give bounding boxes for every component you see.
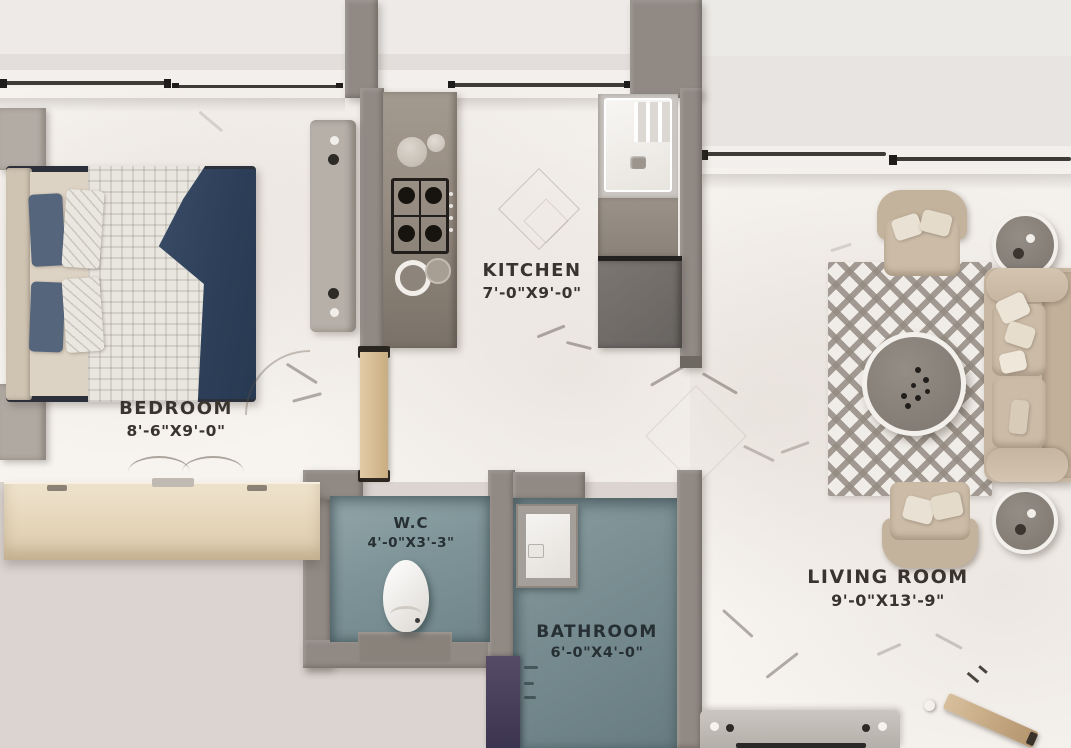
table-decor-dark (911, 383, 916, 388)
nightstand (0, 108, 46, 170)
room-dimensions: 4'-0"X3'-3" (367, 535, 454, 551)
wc-label: W.C 4'-0"X3'-3" (367, 514, 454, 551)
floor-plan: BEDROOM 8'-6"X9'-0" KITCHEN 7'-0"X9'-0" … (0, 0, 1071, 748)
wall-kitchen-right-top (630, 0, 702, 98)
toilet-flush-dot (415, 618, 420, 623)
wall-floor-shadow (0, 98, 345, 112)
console-knob-dark (862, 724, 870, 732)
counter-bowl (425, 258, 451, 284)
tv-console (700, 710, 900, 748)
wc-platform (358, 632, 452, 662)
bathroom-floor-mark (524, 682, 534, 685)
dresser-cabinet (310, 120, 356, 332)
table-decor-dark (925, 389, 930, 394)
cabinet-knob-light (330, 136, 339, 145)
cooking-pot (427, 134, 445, 152)
table-decor-light (1027, 509, 1036, 518)
toilet (383, 560, 429, 632)
table-decor-dark (901, 393, 907, 399)
refrigerator (598, 256, 682, 348)
console-knob-light (878, 722, 887, 731)
stove-knob (449, 228, 453, 232)
tv-screen (736, 743, 866, 748)
window-glass-line (893, 157, 1071, 161)
decor-wire (182, 456, 244, 488)
room-name: BEDROOM (119, 398, 233, 419)
table-decor-dark (1015, 524, 1026, 535)
wall-wc-bath-divider (488, 470, 515, 662)
kitchen-sink (598, 94, 678, 198)
armchair (877, 190, 967, 282)
cabinet-knob-dark (328, 154, 339, 165)
wardrobe-handle (247, 485, 267, 491)
table-decor-dark (905, 403, 911, 409)
table-decor-dark (923, 377, 929, 383)
room-dimensions: 9'-0"X13'-9" (807, 591, 968, 610)
sofa-armrest (986, 448, 1068, 482)
table-decor-light (1026, 234, 1035, 243)
decor-wire (128, 456, 190, 488)
cooking-pot (397, 137, 427, 167)
window-frame-cap (889, 155, 897, 165)
wall-bedroom-kitchen-top (345, 0, 378, 98)
wall-kitchen-living (680, 88, 702, 368)
exterior-wall-right-band (690, 0, 1071, 150)
living-room-label: LIVING ROOM 9'-0"X13'-9" (807, 566, 968, 610)
console-knob-light (710, 722, 719, 731)
round-side-table (992, 488, 1058, 554)
cabinet-knob-light (330, 308, 339, 317)
kitchen-counter-right (598, 198, 678, 256)
double-bed (6, 166, 256, 402)
wooden-door-bedroom (360, 352, 388, 478)
sofa-armrest (986, 268, 1068, 302)
bathroom-label: BATHROOM 6'-0"X4'-0" (536, 622, 658, 661)
wall-floor-shadow (702, 174, 1071, 190)
pillow-white (61, 189, 104, 269)
window-frame-cap (0, 79, 7, 88)
wardrobe (4, 482, 320, 560)
sofa (984, 268, 1071, 482)
wall-bathroom-top (513, 472, 585, 500)
room-name: W.C (367, 514, 454, 532)
table-decor-dark (1013, 248, 1024, 259)
kitchen-counter (383, 92, 457, 348)
bathroom-floor-mark (524, 696, 536, 699)
room-dimensions: 8'-6"X9'-0" (119, 422, 233, 440)
cabinet-knob-dark (328, 288, 339, 299)
window-glass-line (452, 83, 628, 87)
pillow-lumbar (1008, 399, 1029, 435)
bedroom-label: BEDROOM 8'-6"X9'-0" (119, 398, 233, 440)
pillow-blue (29, 281, 65, 352)
window-glass-line (704, 152, 886, 156)
kitchen-label: KITCHEN 7'-0"X9'-0" (482, 260, 581, 302)
stove-burner (425, 225, 442, 242)
bathroom-floor-mark (524, 666, 538, 669)
table-decor-dark (915, 395, 921, 401)
pillow-white (61, 277, 104, 353)
room-name: BATHROOM (536, 622, 658, 642)
window-glass-line (4, 81, 168, 85)
stove-knob (449, 204, 453, 208)
room-name: LIVING ROOM (807, 566, 968, 588)
wardrobe-handle (47, 485, 67, 491)
console-knob-dark (726, 724, 734, 732)
wall-end-cap (680, 356, 702, 368)
washbasin-faucet (528, 544, 544, 558)
wall-bathroom-right (677, 470, 702, 748)
room-name: KITCHEN (482, 260, 581, 281)
window-frame-cap (164, 79, 171, 88)
pillow-blue (28, 193, 66, 267)
gas-stove (391, 178, 449, 254)
armchair (882, 476, 978, 568)
round-coffee-table (862, 332, 966, 436)
stove-burner (398, 225, 415, 242)
stove-knob (449, 192, 453, 196)
sink-faucet (630, 156, 646, 169)
stove-grate-line (419, 181, 421, 251)
room-dimensions: 7'-0"X9'-0" (482, 284, 581, 302)
stove-knob (449, 216, 453, 220)
stove-burner (425, 187, 442, 204)
stove-burner (398, 187, 415, 204)
bathroom-door-purple (486, 656, 520, 748)
sink-drying-rack (634, 102, 670, 142)
room-dimensions: 6'-0"X4'-0" (536, 645, 658, 661)
wall-kitchen-left (360, 88, 384, 350)
door-knob (924, 700, 935, 711)
washbasin (516, 504, 578, 588)
table-decor-dark (915, 367, 921, 373)
